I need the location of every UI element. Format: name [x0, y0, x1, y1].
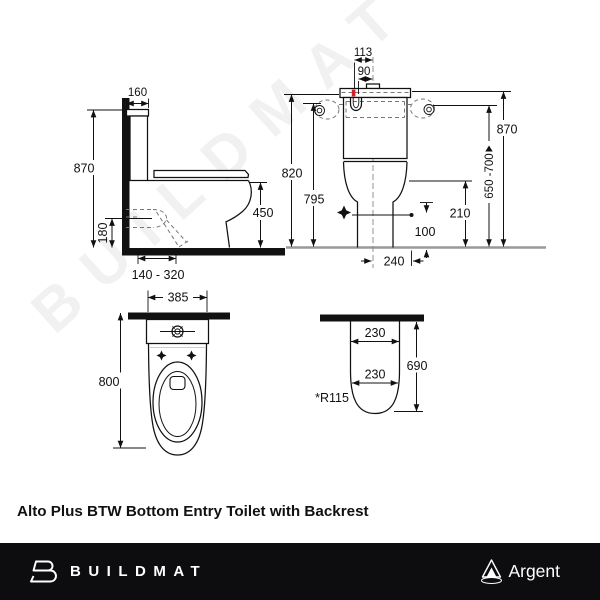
side-trap-hidden-lines [126, 210, 188, 248]
side-view: 160 870 180 450 140 - 320 [70, 87, 285, 282]
dim-label-base-width: 240 [384, 255, 405, 269]
plan-view: 385 800 [93, 290, 230, 455]
dim-label-rim-height: 450 [253, 206, 274, 220]
dim-label-footprint-depth: 690 [407, 359, 428, 373]
rear-inlet-red-marker [352, 90, 356, 97]
dim-label-plan-depth: 800 [99, 375, 120, 389]
rear-inlet-star-icon [337, 206, 351, 220]
dim-label-setout: 140 - 320 [132, 268, 185, 282]
dim-label-footprint-width-lower: 230 [365, 368, 386, 382]
rear-bowl-left [344, 162, 358, 248]
footprint-wall [320, 315, 424, 322]
argent-wordmark: Argent [508, 561, 560, 582]
dim-label-trap-height: 180 [96, 223, 110, 244]
rear-left-inlet-wing [315, 100, 344, 119]
buildmat-logo-icon [27, 556, 61, 588]
plan-hinge-left-icon [157, 351, 167, 361]
buildmat-logo: BUILDMAT [27, 556, 207, 588]
plan-flush-outlet [170, 377, 185, 390]
side-cistern-lid [127, 110, 149, 117]
side-cistern-body [130, 116, 148, 181]
dim-label-inlet-range: 650 -700 [484, 153, 496, 198]
side-seat [154, 171, 249, 178]
screenshot-root: { "product": { "title": "Alto Plus BTW B… [0, 0, 600, 600]
plan-seat-outer [153, 362, 202, 442]
rear-flush-button [367, 84, 380, 89]
dim-label-cistern-depth: 160 [128, 87, 147, 99]
dim-label-height-820: 820 [282, 167, 303, 181]
dim-label-footprint-radius: *R115 [315, 391, 349, 405]
footprint-view: 230 230 690 *R115 [315, 315, 432, 414]
argent-logo: Argent [479, 558, 560, 586]
argent-logo-icon [479, 558, 504, 586]
buildmat-wordmark: BUILDMAT [70, 563, 207, 580]
side-wall [122, 98, 130, 255]
rear-bowl-right [393, 162, 407, 248]
dim-label-height-870: 870 [497, 123, 518, 137]
dim-label-100: 100 [415, 225, 436, 239]
side-floor [122, 248, 285, 256]
dim-label-inlet-width: 90 [358, 66, 371, 78]
dim-label-lid-width: 113 [354, 47, 372, 59]
dim-label-side-height: 870 [74, 162, 95, 176]
rear-right-inlet-wing [407, 99, 435, 118]
plan-wall [128, 313, 230, 320]
rear-cistern-body [344, 98, 408, 159]
dim-label-height-795: 795 [304, 193, 325, 207]
dim-label-210: 210 [450, 207, 471, 221]
rear-view: 113 90 820 795 870 650 -700 210 100 [277, 47, 546, 269]
footer-bar: BUILDMAT Argent [0, 543, 600, 600]
technical-drawing: 160 870 180 450 140 - 320 [0, 0, 600, 543]
plan-hinge-right-icon [187, 351, 197, 361]
side-bowl-outline [226, 181, 251, 248]
plan-pan-outline [149, 344, 207, 456]
dim-label-footprint-width-upper: 230 [365, 326, 386, 340]
rear-inlet-point [410, 213, 414, 217]
product-title: Alto Plus BTW Bottom Entry Toilet with B… [17, 503, 369, 520]
dim-label-plan-width: 385 [168, 291, 189, 305]
